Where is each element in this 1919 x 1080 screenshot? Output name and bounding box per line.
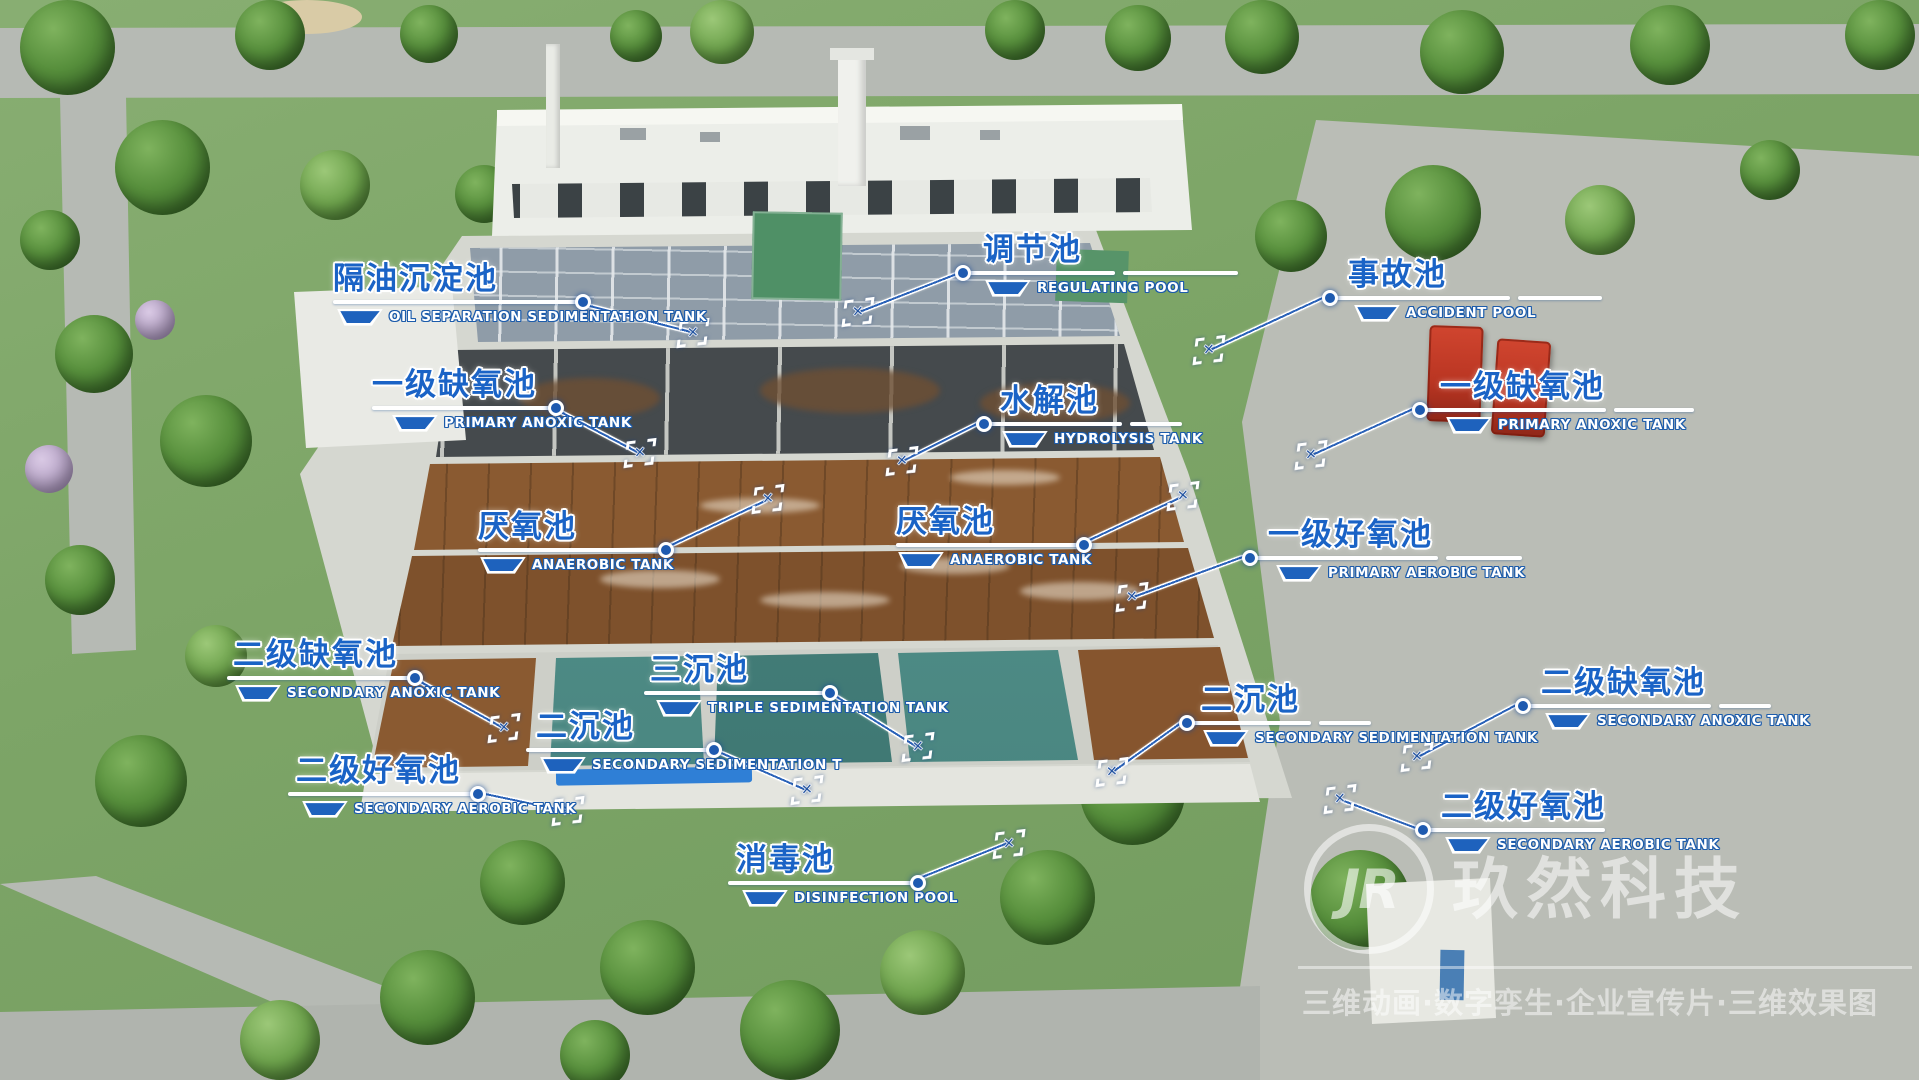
target-marker[interactable]: ✕ [1294,440,1327,470]
target-marker[interactable]: ✕ [751,484,784,514]
endpoint-dot [470,786,486,802]
underline-seg [965,271,1115,275]
tree [1845,0,1915,70]
label-underline [333,300,707,306]
tank-label-en: ACCIDENT POOL [1406,305,1536,321]
tank-icon [337,309,383,326]
hotspot-secondary-aerobic-tank-left[interactable]: 二级好氧池 SECONDARY AEROBIC TANK [296,754,576,818]
underline-seg [372,406,558,410]
endpoint-dot [658,542,674,558]
hotspot-secondary-sedimentation-tank-left[interactable]: 二沉池 SECONDARY SEDIMENTATION T [536,710,842,774]
endpoint-dot [1242,550,1258,566]
tank-icon [1203,730,1249,747]
hotspot-secondary-anoxic-tank-right[interactable]: 二级缺氧池 SECONDARY ANOXIC TANK [1541,666,1810,730]
target-marker[interactable]: ✕ [1166,481,1199,511]
label-underline [736,881,958,887]
endpoint-dot [955,265,971,281]
watermark-divider [1298,966,1912,969]
underline-seg [526,748,714,752]
label-underline [1348,296,1536,302]
endpoint-dot [575,294,591,310]
tank-label-cn: 二沉池 [1201,683,1538,719]
hotspot-primary-anoxic-tank-left[interactable]: 一级缺氧池 PRIMARY ANOXIC TANK [372,368,632,432]
tank-label-en: SECONDARY ANOXIC TANK [287,685,500,701]
target-marker[interactable]: ✕ [885,446,918,476]
tank-label-en: REGULATING POOL [1037,280,1188,296]
endpoint-dot [548,400,564,416]
underline-seg [1332,296,1510,300]
label-underline [896,543,1092,549]
tank-label-cn: 消毒池 [736,843,958,879]
tree [985,0,1045,60]
underline-seg [288,792,478,796]
underline-seg [1123,271,1238,275]
tree [240,1000,320,1080]
tree [380,950,475,1045]
tree [1225,0,1299,74]
tank-label-cn: 二级好氧池 [1441,790,1719,826]
tank-label-cn: 二级好氧池 [296,754,576,790]
tree [160,395,252,487]
jr-logo: JR [1304,824,1434,954]
hotspot-accident-pool[interactable]: 事故池 ACCIDENT POOL [1348,258,1536,322]
endpoint-dot [910,875,926,891]
tank-icon [302,801,348,818]
tree [20,0,115,95]
underline-seg [986,422,1122,426]
tree [480,840,565,925]
wastewater-plant-3d-render: ✕ ✕ ✕ ✕ ✕ ✕ ✕ ✕ ✕ ✕ ✕ ✕ ✕ ✕ ✕ ✕ ✕ 隔油沉淀池 … [0,0,1919,1080]
label-underline [650,691,949,697]
underline-seg [896,543,1086,547]
hotspot-anaerobic-tank-center[interactable]: 厌氧池 ANAEROBIC TANK [896,505,1092,569]
tank-icon [1445,837,1491,854]
tree [600,920,695,1015]
endpoint-dot [976,416,992,432]
target-marker[interactable]: ✕ [790,775,823,805]
underline-seg [1614,408,1694,412]
label-underline [1201,721,1538,727]
endpoint-dot [706,742,722,758]
tank-label-en: ANAEROBIC TANK [532,557,674,573]
blossom-tree [135,300,175,340]
chimney-stack [838,54,866,186]
label-underline [372,406,632,412]
tank-label-en: PRIMARY ANOXIC TANK [444,415,632,431]
underline-seg [728,881,918,885]
label-underline [233,676,500,682]
underline-seg [1525,704,1711,708]
label-underline [1441,828,1719,834]
hotspot-disinfection-pool[interactable]: 消毒池 DISINFECTION POOL [736,843,958,907]
label-underline [1541,704,1810,710]
target-marker[interactable]: ✕ [901,732,934,762]
hotspot-hydrolysis-tank[interactable]: 水解池 HYDROLYSIS TANK [1000,384,1203,448]
label-underline [1000,422,1203,428]
tank-label-en: SECONDARY AEROBIC TANK [1497,837,1719,853]
tree [1000,850,1095,945]
label-underline [983,271,1188,277]
underline-seg [478,548,668,552]
tree [1740,140,1800,200]
tank-label-en: SECONDARY ANOXIC TANK [1597,713,1810,729]
tank-icon [1446,417,1492,434]
underline-seg [1422,408,1606,412]
tank-icon [742,890,788,907]
tank-label-en: ANAEROBIC TANK [950,552,1092,568]
target-marker[interactable]: ✕ [623,438,656,468]
target-marker[interactable]: ✕ [1192,335,1225,365]
underline-seg [1719,704,1771,708]
tree [690,0,754,64]
tree [235,0,305,70]
tank-icon [392,415,438,432]
tank-label-cn: 一级缺氧池 [372,368,632,404]
vent-tower [546,44,560,168]
target-marker[interactable]: ✕ [1095,757,1128,787]
target-marker[interactable]: ✕ [1115,582,1148,612]
underline-seg [227,676,415,680]
tree [115,120,210,215]
tree [20,210,80,270]
tank-label-en: SECONDARY SEDIMENTATION TANK [1255,730,1538,746]
tank-icon [1276,565,1322,582]
roof-vent [620,128,646,140]
endpoint-dot [1076,537,1092,553]
tree [1420,10,1504,94]
endpoint-dot [407,670,423,686]
underline-seg [1189,721,1311,725]
tank-label-cn: 二级缺氧池 [1541,666,1810,702]
tank-label-cn: 三沉池 [650,653,949,689]
foam-streak [950,470,1060,485]
target-marker[interactable]: ✕ [992,829,1025,859]
hotspot-primary-aerobic-tank[interactable]: 一级好氧池 PRIMARY AEROBIC TANK [1268,518,1525,582]
target-marker[interactable]: ✕ [1323,784,1356,814]
endpoint-dot [1515,698,1531,714]
tree [1630,5,1710,85]
underline-seg [1130,422,1182,426]
water-patch [760,368,940,413]
tank-label-cn: 调节池 [983,233,1188,269]
underline-seg [1446,556,1522,560]
tank-label-en: SECONDARY SEDIMENTATION T [592,757,842,773]
hotspot-secondary-aerobic-tank-right[interactable]: 二级好氧池 SECONDARY AEROBIC TANK [1441,790,1719,854]
underline-seg [1319,721,1371,725]
tank-label-cn: 一级缺氧池 [1440,370,1686,406]
roof-vent [900,126,930,140]
endpoint-dot [1322,290,1338,306]
jr-logo-text: JR [1340,858,1398,921]
watermark-tagline: 三维动画·数字孪生·企业宣传片·三维效果图 [1302,980,1878,1022]
target-marker[interactable]: ✕ [841,297,874,327]
tank-icon [235,685,281,702]
hotspot-secondary-sedimentation-tank-right[interactable]: 二沉池 SECONDARY SEDIMENTATION TANK [1201,683,1538,747]
underline-seg [1252,556,1438,560]
underline-seg [644,691,830,695]
endpoint-dot [1415,822,1431,838]
blossom-tree [25,445,73,493]
tree [1565,185,1635,255]
roof-vent [980,130,1000,140]
tree [740,980,840,1080]
endpoint-dot [822,685,838,701]
hotspot-anaerobic-tank-left[interactable]: 厌氧池 ANAEROBIC TANK [478,510,674,574]
tank-label-cn: 厌氧池 [478,510,674,546]
tree [45,545,115,615]
tank-label-en: PRIMARY AEROBIC TANK [1328,565,1525,581]
hotspot-primary-anoxic-tank-right[interactable]: 一级缺氧池 PRIMARY ANOXIC TANK [1440,370,1686,434]
label-underline [536,748,842,754]
underline-seg [1425,828,1605,832]
tank-icon [1002,431,1048,448]
tree [880,930,965,1015]
tank-label-cn: 事故池 [1348,258,1536,294]
roof-vent [700,132,720,142]
tree [1105,5,1171,71]
tank-icon [985,280,1031,297]
target-marker[interactable]: ✕ [487,713,520,743]
foam-streak [760,592,890,608]
tank-label-cn: 隔油沉淀池 [333,262,707,298]
tank-label-en: SECONDARY AEROBIC TANK [354,801,576,817]
endpoint-dot [1179,715,1195,731]
tree [95,735,187,827]
chimney-cap [830,48,874,60]
label-underline [478,548,674,554]
tank-icon [1545,713,1591,730]
tree [1255,200,1327,272]
green-structure [751,211,843,301]
tank-icon [1354,305,1400,322]
tank-label-en: HYDROLYSIS TANK [1054,431,1203,447]
underline-seg [333,300,583,304]
tank-label-cn: 二沉池 [536,710,842,746]
tank-icon [480,557,526,574]
underline-seg [1518,296,1602,300]
tree [400,5,458,63]
hotspot-secondary-anoxic-tank-left[interactable]: 二级缺氧池 SECONDARY ANOXIC TANK [233,638,500,702]
tree [55,315,133,393]
tank-label-cn: 水解池 [1000,384,1203,420]
label-underline [1268,556,1525,562]
label-underline [1440,408,1686,414]
tank-label-cn: 二级缺氧池 [233,638,500,674]
hotspot-regulating-pool[interactable]: 调节池 REGULATING POOL [983,233,1188,297]
tree [300,150,370,220]
tank-label-cn: 厌氧池 [896,505,1092,541]
tank-label-en: PRIMARY ANOXIC TANK [1498,417,1686,433]
label-underline [296,792,576,798]
tank-icon [898,552,944,569]
tank-label-en: DISINFECTION POOL [794,890,958,906]
tank-label-en: OIL SEPARATION SEDIMENTATION TANK [389,309,707,325]
endpoint-dot [1412,402,1428,418]
tank-label-cn: 一级好氧池 [1268,518,1525,554]
hotspot-oil-separation-sedimentation-tank[interactable]: 隔油沉淀池 OIL SEPARATION SEDIMENTATION TANK [333,262,707,326]
hotspot-triple-sedimentation-tank[interactable]: 三沉池 TRIPLE SEDIMENTATION TANK [650,653,949,717]
tree [610,10,662,62]
tree [1385,165,1481,261]
